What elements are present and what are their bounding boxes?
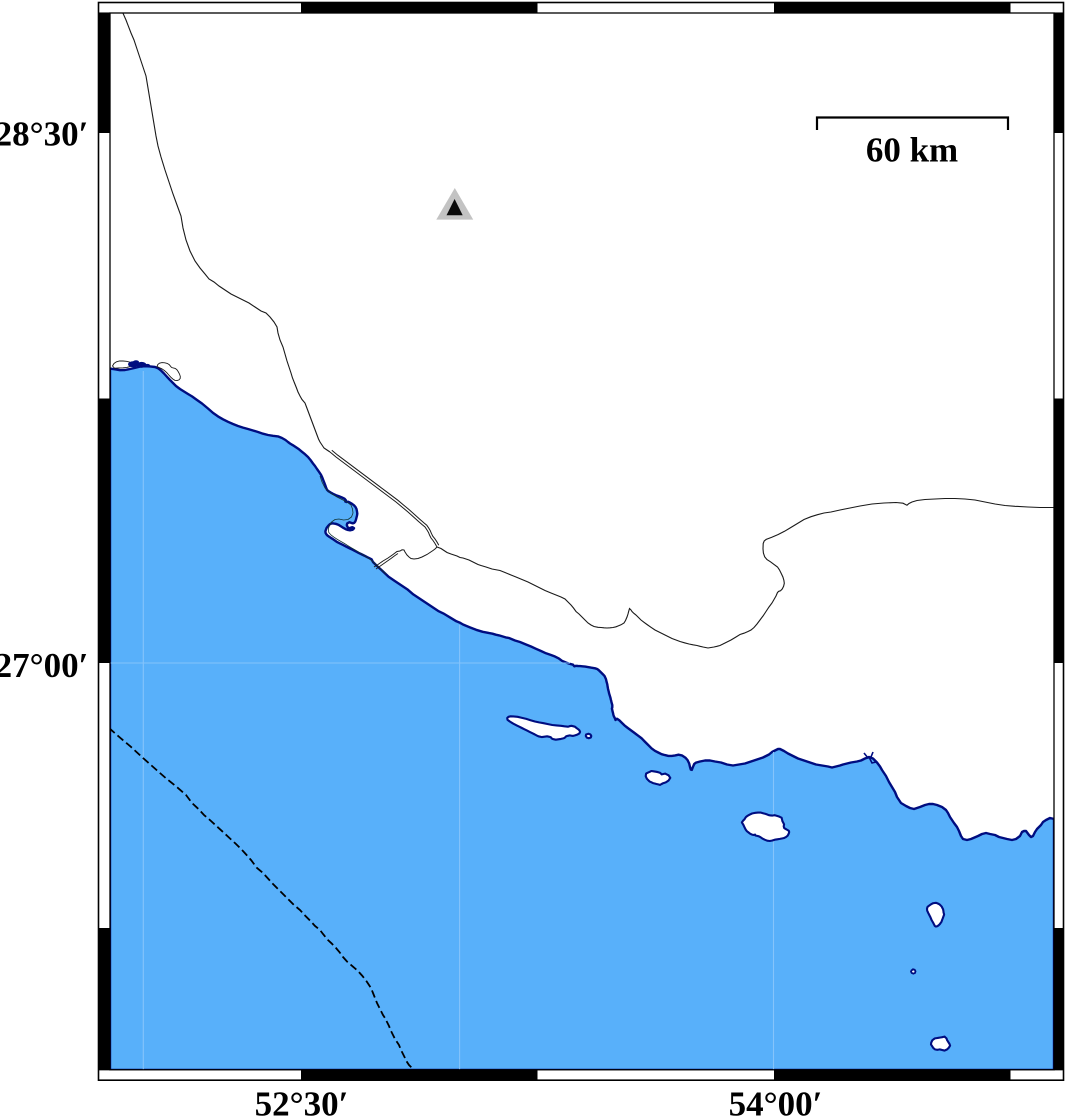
svg-text:27°00′: 27°00′ bbox=[0, 646, 89, 685]
svg-text:52°30′: 52°30′ bbox=[255, 1085, 349, 1118]
svg-text:60 km: 60 km bbox=[866, 131, 958, 170]
svg-text:28°30′: 28°30′ bbox=[0, 115, 89, 154]
svg-text:54°00′: 54°00′ bbox=[729, 1085, 823, 1118]
